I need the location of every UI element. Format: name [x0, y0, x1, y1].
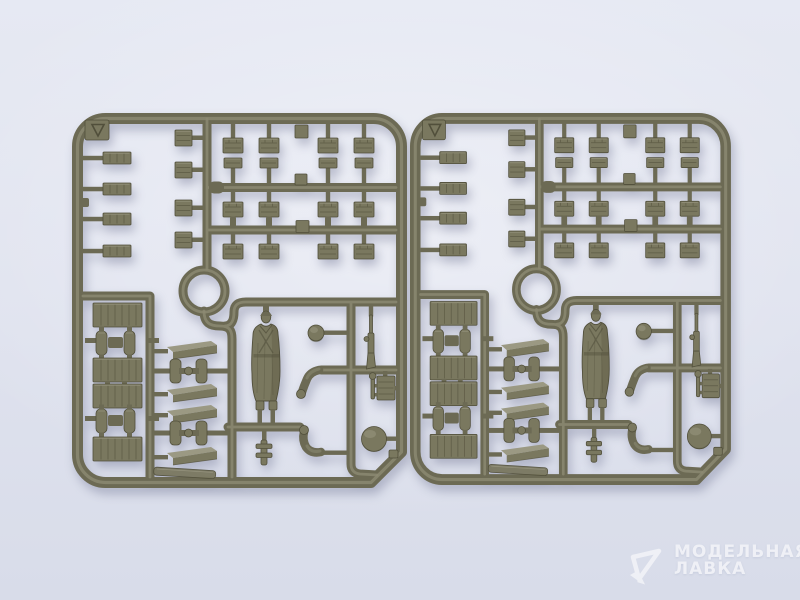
watermark: МОДЕЛЬНАЯ ЛАВКА	[628, 544, 800, 586]
watermark-logo-icon	[628, 546, 666, 586]
watermark-text: МОДЕЛЬНАЯ ЛАВКА	[674, 544, 800, 578]
sprue-left	[78, 119, 402, 483]
sprue-right	[415, 118, 725, 479]
photo-canvas: МОДЕЛЬНАЯ ЛАВКА	[0, 0, 800, 600]
watermark-line2: ЛАВКА	[674, 559, 746, 579]
sprues-illustration	[0, 0, 800, 600]
